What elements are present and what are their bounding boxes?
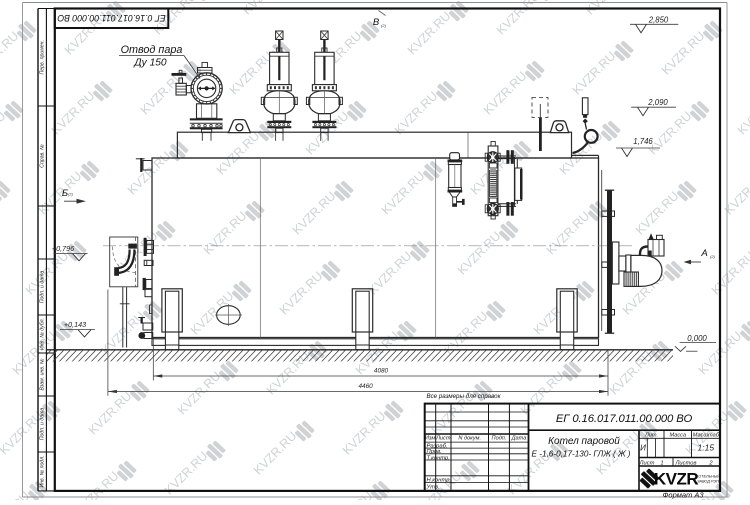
svg-text:Пров.: Пров.	[427, 449, 442, 455]
svg-text:Инв. № подл.: Инв. № подл.	[40, 455, 46, 487]
svg-text:Ду 150: Ду 150	[133, 58, 167, 69]
svg-text:ЕГ 0.16.017.011.00.000 ВО: ЕГ 0.16.017.011.00.000 ВО	[556, 413, 693, 425]
svg-text:Формат А3: Формат А3	[662, 491, 704, 500]
svg-text:Котел паровой: Котел паровой	[548, 436, 620, 447]
svg-text:2,090: 2,090	[647, 98, 668, 107]
svg-text:Изм: Изм	[425, 436, 436, 442]
svg-text:Е -1,6-0,17-130- ГЛЖ ( Ж ): Е -1,6-0,17-130- ГЛЖ ( Ж )	[532, 450, 631, 459]
svg-text:Справ. №: Справ. №	[40, 144, 46, 168]
svg-text:Перв. примен.: Перв. примен.	[40, 40, 46, 74]
svg-text:Подп. и дата: Подп. и дата	[40, 271, 46, 304]
svg-text:КОТЕЛЬНЫЙ: КОТЕЛЬНЫЙ	[696, 475, 720, 479]
svg-text:Все размеры для справок: Все размеры для справок	[426, 393, 501, 400]
svg-text:2,850: 2,850	[648, 15, 669, 24]
svg-text:Н.контр.: Н.контр.	[427, 478, 452, 484]
svg-text:Отвод пара: Отвод пара	[121, 44, 183, 56]
svg-text:И: И	[640, 444, 646, 453]
svg-text:+0,143: +0,143	[64, 320, 86, 329]
svg-text:KVZR: KVZR	[654, 470, 699, 489]
svg-text:Лист: Лист	[435, 436, 451, 442]
svg-text:Масса: Масса	[670, 432, 687, 438]
svg-text:4460: 4460	[358, 383, 373, 390]
svg-text:N докум.: N докум.	[458, 436, 481, 442]
svg-text:Инв. № дубл.: Инв. № дубл.	[40, 318, 46, 350]
svg-text:Взам. инв. №: Взам. инв. №	[40, 358, 46, 390]
svg-text:Подп.: Подп.	[492, 436, 507, 442]
svg-text:Масштаб: Масштаб	[693, 432, 720, 438]
svg-text:1:15: 1:15	[698, 443, 715, 453]
svg-text:+0,796: +0,796	[52, 244, 74, 253]
svg-text:Подп. и дата: Подп. и дата	[40, 408, 46, 441]
svg-text:Лит.: Лит.	[644, 432, 658, 438]
svg-text:(2): (2)	[710, 254, 716, 259]
svg-text:ЗАВОД РЭП: ЗАВОД РЭП	[697, 480, 719, 484]
svg-text:1,746: 1,746	[633, 137, 653, 146]
svg-text:В: В	[373, 17, 380, 28]
svg-text:А: А	[700, 248, 707, 259]
svg-text:ЕГ 0.16.017.011.00.000 ВО: ЕГ 0.16.017.011.00.000 ВО	[57, 13, 165, 23]
svg-text:(2): (2)	[381, 23, 387, 28]
svg-text:Т.контр.: Т.контр.	[427, 455, 450, 461]
svg-text:Утв.: Утв.	[426, 485, 440, 491]
svg-text:Дата: Дата	[511, 436, 527, 442]
svg-text:0,000: 0,000	[687, 334, 707, 343]
svg-text:4080: 4080	[374, 368, 389, 375]
svg-text:(2): (2)	[68, 192, 74, 197]
